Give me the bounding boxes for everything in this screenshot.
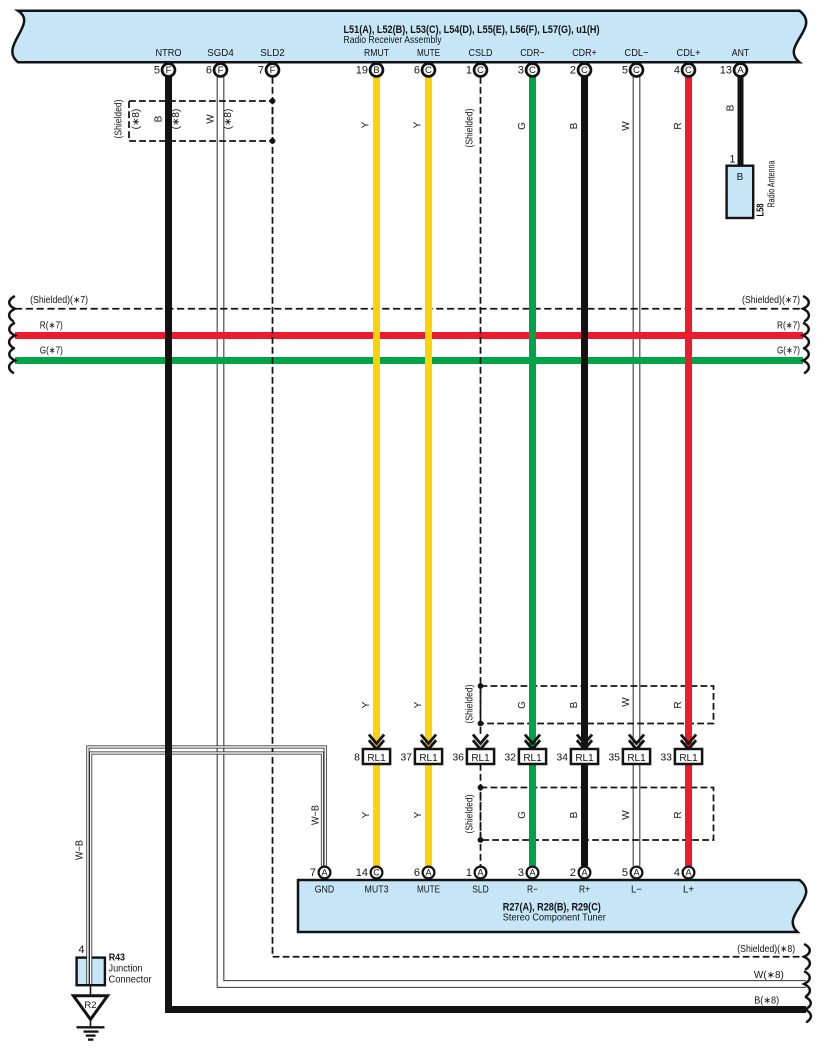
svg-text:Junction: Junction	[109, 964, 143, 975]
svg-text:35: 35	[608, 752, 620, 764]
svg-text:7: 7	[258, 65, 264, 77]
svg-text:MUTE: MUTE	[417, 885, 440, 896]
svg-text:1: 1	[729, 154, 735, 166]
svg-text:4: 4	[674, 65, 680, 77]
svg-text:2: 2	[570, 867, 576, 879]
svg-text:(Shielded)(∗8): (Shielded)(∗8)	[737, 944, 795, 955]
svg-text:RL1: RL1	[523, 753, 542, 764]
svg-text:W: W	[621, 810, 632, 820]
svg-text:R43: R43	[109, 952, 125, 964]
svg-text:13: 13	[720, 65, 732, 77]
svg-text:CDR−: CDR−	[520, 48, 545, 59]
svg-text:SLD: SLD	[472, 885, 489, 896]
svg-text:B: B	[726, 104, 737, 111]
svg-text:CDL−: CDL−	[625, 48, 649, 59]
svg-text:R2: R2	[84, 1000, 96, 1011]
svg-text:(∗8): (∗8)	[171, 109, 182, 130]
svg-text:F: F	[166, 65, 172, 76]
svg-text:6: 6	[206, 65, 212, 77]
svg-text:4: 4	[78, 944, 84, 956]
svg-text:MUT3: MUT3	[365, 885, 389, 896]
svg-text:Stereo Component Tuner: Stereo Component Tuner	[503, 911, 606, 923]
svg-text:F: F	[270, 65, 276, 76]
svg-text:R−: R−	[527, 885, 538, 896]
svg-text:G(∗7): G(∗7)	[777, 346, 800, 357]
svg-text:(Shielded): (Shielded)	[465, 795, 476, 834]
svg-text:W−B: W−B	[75, 840, 86, 860]
svg-text:B: B	[569, 122, 580, 129]
svg-text:A: A	[477, 867, 483, 877]
svg-text:R(∗7): R(∗7)	[40, 321, 63, 332]
svg-text:(Shielded)(∗7): (Shielded)(∗7)	[742, 295, 800, 306]
svg-text:8: 8	[354, 752, 360, 764]
svg-text:A: A	[685, 867, 691, 877]
svg-text:Y: Y	[361, 121, 372, 128]
svg-text:W: W	[206, 114, 217, 124]
svg-text:3: 3	[518, 65, 524, 77]
svg-text:6: 6	[414, 867, 420, 879]
svg-text:Y: Y	[413, 121, 424, 128]
svg-text:RL1: RL1	[575, 753, 594, 764]
svg-text:G: G	[517, 701, 528, 709]
svg-text:36: 36	[452, 752, 464, 764]
svg-text:MUTE: MUTE	[417, 48, 440, 59]
svg-text:(Shielded): (Shielded)	[465, 109, 476, 148]
svg-text:A: A	[737, 65, 744, 76]
svg-text:A: A	[321, 867, 327, 877]
svg-text:B(∗8): B(∗8)	[754, 996, 779, 1007]
svg-text:4: 4	[674, 867, 680, 879]
svg-text:R: R	[673, 811, 684, 818]
svg-text:7: 7	[310, 867, 316, 879]
svg-text:L58: L58	[754, 203, 766, 216]
svg-text:(Shielded): (Shielded)	[114, 100, 125, 139]
svg-text:Y: Y	[413, 811, 424, 818]
svg-text:Y: Y	[361, 701, 372, 708]
svg-text:L−: L−	[631, 885, 642, 896]
svg-text:(Shielded): (Shielded)	[465, 685, 476, 724]
svg-text:GND: GND	[315, 885, 335, 896]
svg-text:1: 1	[466, 65, 472, 77]
svg-text:W−B: W−B	[311, 805, 322, 825]
svg-text:G: G	[517, 122, 528, 130]
svg-text:C: C	[477, 65, 484, 76]
svg-text:3: 3	[518, 867, 524, 879]
svg-text:B: B	[737, 172, 744, 183]
svg-text:A: A	[529, 867, 535, 877]
svg-text:A: A	[633, 867, 639, 877]
svg-text:2: 2	[570, 65, 576, 77]
svg-text:R: R	[673, 701, 684, 708]
svg-text:R+: R+	[579, 885, 590, 896]
svg-text:G: G	[517, 811, 528, 819]
svg-text:CSLD: CSLD	[469, 48, 493, 59]
svg-text:RMUT: RMUT	[364, 48, 389, 59]
svg-text:5: 5	[154, 65, 160, 77]
svg-text:G(∗7): G(∗7)	[40, 346, 63, 357]
svg-text:B: B	[569, 811, 580, 818]
svg-text:W(∗8): W(∗8)	[754, 970, 784, 981]
svg-text:B: B	[569, 701, 580, 708]
svg-text:Connector: Connector	[109, 975, 153, 986]
svg-text:Radio Antenna: Radio Antenna	[767, 160, 778, 207]
svg-text:19: 19	[356, 65, 368, 77]
svg-text:ANT: ANT	[732, 48, 750, 59]
svg-text:F: F	[218, 65, 224, 76]
svg-text:RL1: RL1	[679, 753, 698, 764]
svg-text:SLD2: SLD2	[260, 48, 285, 59]
svg-text:RL1: RL1	[419, 753, 438, 764]
svg-text:L+: L+	[683, 885, 694, 896]
svg-text:RL1: RL1	[471, 753, 490, 764]
svg-text:1: 1	[466, 867, 472, 879]
svg-text:6: 6	[414, 65, 420, 77]
svg-text:B: B	[373, 65, 379, 76]
svg-text:34: 34	[556, 752, 568, 764]
svg-text:RL1: RL1	[367, 753, 386, 764]
svg-text:(∗8): (∗8)	[223, 109, 234, 130]
svg-text:A: A	[581, 867, 587, 877]
svg-text:5: 5	[622, 867, 628, 879]
svg-text:R(∗7): R(∗7)	[777, 321, 800, 332]
svg-text:CDL+: CDL+	[677, 48, 701, 59]
svg-text:W: W	[621, 121, 632, 131]
svg-text:(∗8): (∗8)	[131, 109, 142, 130]
svg-text:5: 5	[622, 65, 628, 77]
svg-text:SGD4: SGD4	[207, 48, 234, 59]
svg-text:32: 32	[504, 752, 516, 764]
svg-text:RL1: RL1	[627, 753, 646, 764]
svg-text:CDR+: CDR+	[572, 48, 597, 59]
svg-text:NTRO: NTRO	[156, 48, 182, 59]
svg-text:C: C	[581, 65, 588, 76]
svg-text:Y: Y	[361, 811, 372, 818]
svg-text:W: W	[621, 697, 632, 707]
svg-text:A: A	[425, 867, 431, 877]
svg-text:C: C	[373, 867, 380, 877]
svg-text:C: C	[685, 65, 692, 76]
svg-text:B: B	[154, 115, 165, 122]
svg-text:Radio Receiver Assembly: Radio Receiver Assembly	[344, 34, 443, 46]
svg-text:R: R	[673, 122, 684, 129]
svg-text:(Shielded)(∗7): (Shielded)(∗7)	[30, 295, 88, 306]
svg-text:C: C	[529, 65, 536, 76]
svg-text:33: 33	[660, 752, 672, 764]
svg-text:C: C	[425, 65, 432, 76]
svg-text:14: 14	[356, 867, 368, 879]
svg-text:Y: Y	[413, 701, 424, 708]
svg-text:C: C	[633, 65, 640, 76]
svg-text:37: 37	[400, 752, 412, 764]
